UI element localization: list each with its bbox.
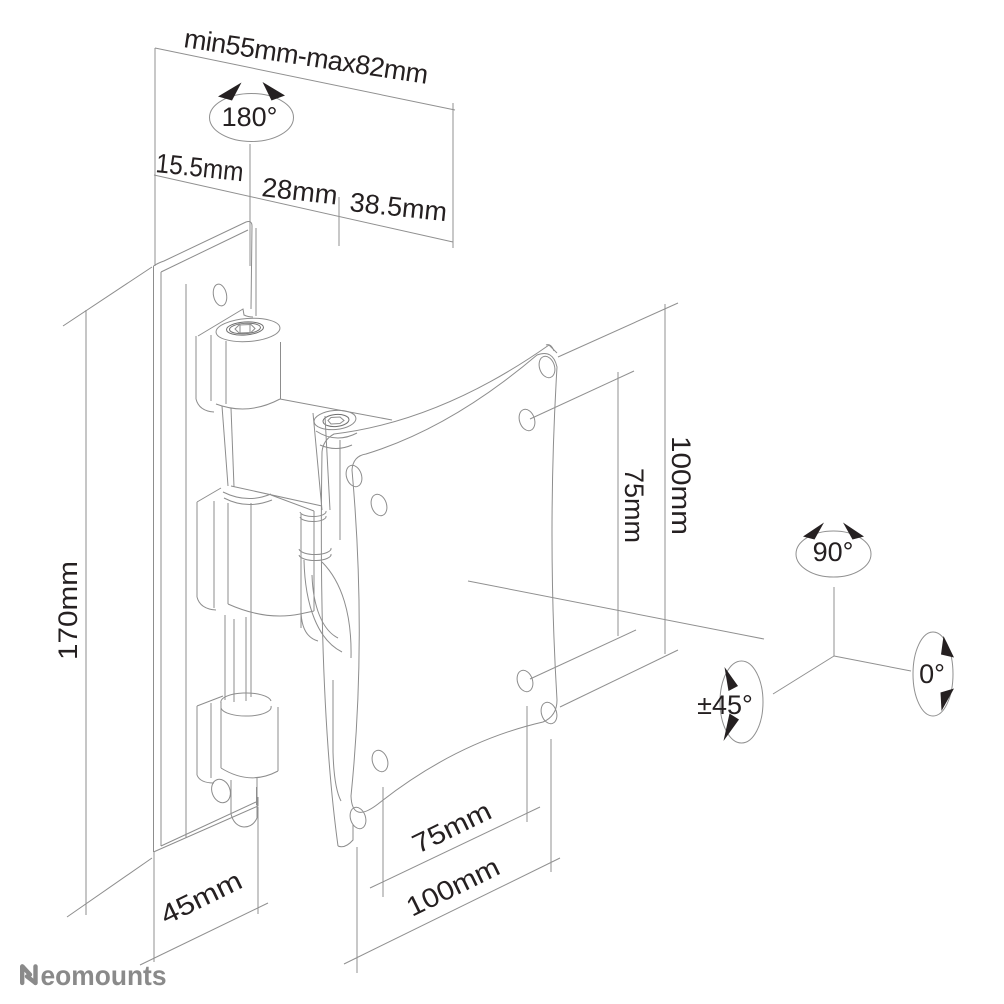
svg-text:0°: 0° <box>919 659 945 689</box>
svg-text:100mm: 100mm <box>666 436 696 535</box>
svg-text:170mm: 170mm <box>53 561 83 660</box>
svg-text:±45°: ±45° <box>697 690 753 720</box>
svg-text:75mm: 75mm <box>619 468 649 543</box>
svg-text:90°: 90° <box>813 537 854 567</box>
svg-text:180°: 180° <box>222 102 278 132</box>
svg-text:eomounts: eomounts <box>41 960 167 991</box>
